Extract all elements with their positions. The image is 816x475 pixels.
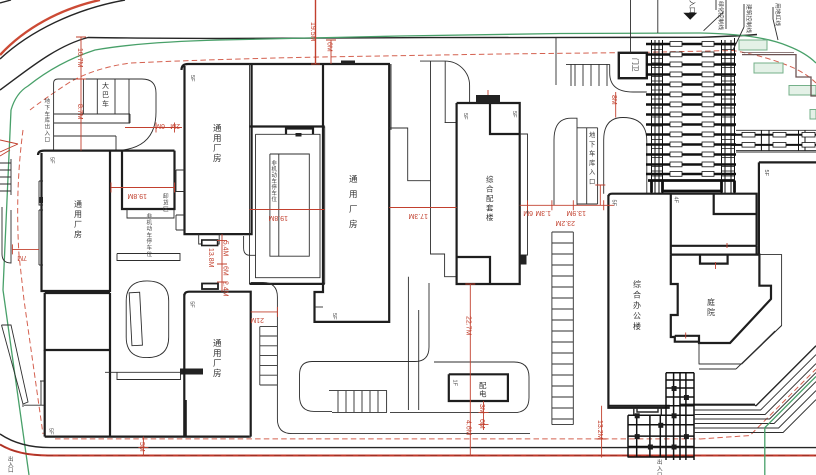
svg-text:5F: 5F bbox=[331, 313, 337, 320]
svg-text:19.8M: 19.8M bbox=[127, 192, 147, 199]
svg-text:21M: 21M bbox=[250, 316, 264, 323]
svg-text:用地红线: 用地红线 bbox=[774, 3, 782, 26]
svg-text:3M: 3M bbox=[478, 404, 485, 414]
svg-text:综合办公楼: 综合办公楼 bbox=[633, 279, 641, 331]
svg-text:综合配套楼: 综合配套楼 bbox=[486, 174, 494, 222]
svg-text:入口: 入口 bbox=[688, 0, 696, 14]
svg-text:8.7M: 8.7M bbox=[76, 104, 83, 120]
svg-text:6M: 6M bbox=[326, 42, 333, 52]
svg-text:19.8M: 19.8M bbox=[268, 214, 288, 221]
svg-text:5.4M: 5.4M bbox=[222, 241, 229, 257]
svg-text:17.3M: 17.3M bbox=[408, 212, 428, 219]
svg-text:6M: 6M bbox=[523, 209, 533, 216]
svg-text:13.2M: 13.2M bbox=[596, 420, 603, 440]
svg-text:出入口: 出入口 bbox=[8, 455, 14, 474]
svg-text:非机动车停车位: 非机动车停车位 bbox=[147, 212, 153, 258]
svg-text:5F: 5F bbox=[189, 75, 195, 82]
svg-text:6M: 6M bbox=[478, 419, 485, 429]
svg-text:大巴车: 大巴车 bbox=[102, 81, 109, 108]
svg-text:地下车库出入口: 地下车库出入口 bbox=[45, 97, 51, 143]
svg-text:7M: 7M bbox=[17, 254, 27, 261]
svg-text:卸货区: 卸货区 bbox=[163, 192, 169, 213]
svg-text:13.8M: 13.8M bbox=[207, 248, 214, 268]
svg-text:通用厂房: 通用厂房 bbox=[213, 338, 222, 378]
svg-text:2.4M: 2.4M bbox=[222, 281, 229, 297]
svg-text:23.2M: 23.2M bbox=[555, 219, 575, 226]
svg-text:1.3M: 1.3M bbox=[535, 209, 551, 216]
svg-text:非机动车停车位: 非机动车停车位 bbox=[272, 159, 278, 203]
svg-text:通用厂房: 通用厂房 bbox=[213, 123, 222, 163]
svg-text:绿化控制线: 绿化控制线 bbox=[717, 1, 725, 30]
svg-text:5F: 5F bbox=[511, 111, 517, 118]
svg-text:出入口: 出入口 bbox=[657, 458, 663, 475]
svg-text:1F: 1F bbox=[452, 380, 458, 387]
svg-text:5F: 5F bbox=[49, 157, 55, 164]
svg-text:22.7M: 22.7M bbox=[465, 316, 472, 336]
svg-text:8M: 8M bbox=[610, 95, 617, 105]
svg-text:10.7M: 10.7M bbox=[76, 48, 83, 68]
svg-text:2M: 2M bbox=[170, 122, 180, 129]
svg-text:4.6M: 4.6M bbox=[465, 420, 472, 436]
svg-text:6M: 6M bbox=[155, 122, 165, 129]
svg-text:5F: 5F bbox=[48, 428, 54, 435]
svg-text:19.5M: 19.5M bbox=[309, 22, 316, 42]
svg-text:13.9M: 13.9M bbox=[566, 209, 586, 216]
svg-text:6M: 6M bbox=[222, 266, 229, 276]
svg-text:4F: 4F bbox=[673, 197, 679, 204]
svg-text:5F: 5F bbox=[462, 113, 468, 120]
svg-text:门卫: 门卫 bbox=[631, 58, 640, 72]
svg-text:5F: 5F bbox=[189, 301, 195, 308]
svg-text:5M: 5M bbox=[138, 442, 145, 452]
svg-text:5F: 5F bbox=[763, 170, 769, 177]
svg-text:配电: 配电 bbox=[479, 381, 487, 399]
svg-text:建筑控制线: 建筑控制线 bbox=[745, 4, 753, 33]
